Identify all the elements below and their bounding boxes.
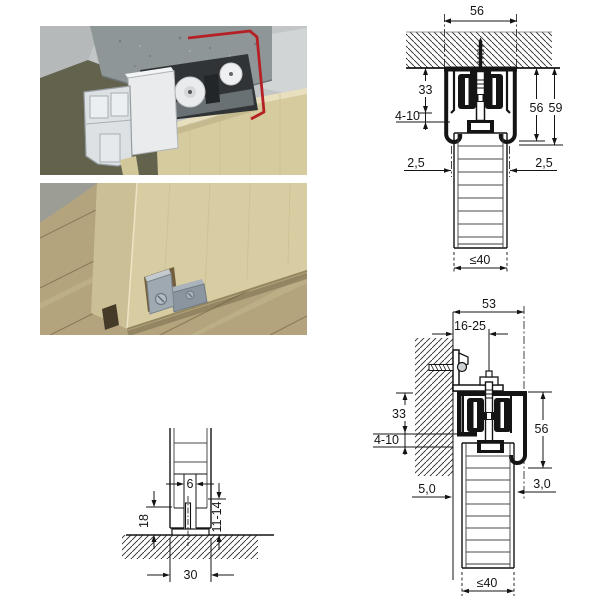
photo-floor-guide-3d: [40, 183, 307, 335]
dim-rail-drop: 33: [392, 407, 406, 421]
door-section: [462, 443, 514, 568]
ceiling-mount-section-drawing: 56 33 4-10 56 59 2,5 2,5 ≤40: [380, 0, 600, 290]
dim-engagement-depth: 11-14: [210, 501, 224, 532]
dim-guide-height: 18: [137, 514, 151, 528]
running-track-profile: [444, 67, 517, 143]
track-left-wall: [457, 394, 462, 436]
catalog-page: 56 33 4-10 56 59 2,5 2,5 ≤40: [0, 0, 600, 600]
dim-track-width: 53: [482, 297, 496, 311]
photo-top-track-3d: [40, 26, 307, 175]
dim-side-gap: 3,0: [533, 477, 550, 491]
running-track-profile: [457, 382, 527, 463]
bracket-screw: [458, 363, 467, 372]
dim-adjustment: 4-10: [374, 433, 399, 447]
dim-door-thickness: ≤40: [470, 253, 491, 267]
dim-wall-clearance: 16-25: [454, 319, 486, 333]
dim-groove-width: 6: [187, 477, 194, 491]
dim-wall-gap: 5,0: [418, 482, 435, 496]
dim-adjustment: 4-10: [395, 109, 420, 123]
dim-door-thickness: ≤40: [477, 576, 498, 590]
dim-track-height: 56: [530, 101, 544, 115]
dim-rail-drop: 33: [419, 83, 433, 97]
floor-guide-section-drawing: 6 18 11-14 30: [120, 420, 290, 600]
guide-base-plate: [172, 529, 209, 535]
track-right-wall: [511, 396, 525, 463]
dimensions: 53 16-25 33 4-10 56 5,0 3,0: [373, 297, 556, 596]
wall-hatch: [415, 338, 453, 476]
dim-groove-spacing: 30: [184, 568, 198, 582]
floor-hatch: [122, 535, 258, 559]
dim-track-height: 56: [535, 422, 549, 436]
roller-carriage: [204, 74, 220, 104]
door-section: [454, 133, 507, 248]
dim-track-width: 56: [470, 4, 484, 18]
dim-gap-right: 2,5: [535, 156, 552, 170]
dim-overall-height: 59: [549, 101, 563, 115]
wall-mount-section-drawing: 53 16-25 33 4-10 56 5,0 3,0: [360, 290, 600, 600]
dim-gap-left: 2,5: [407, 156, 424, 170]
